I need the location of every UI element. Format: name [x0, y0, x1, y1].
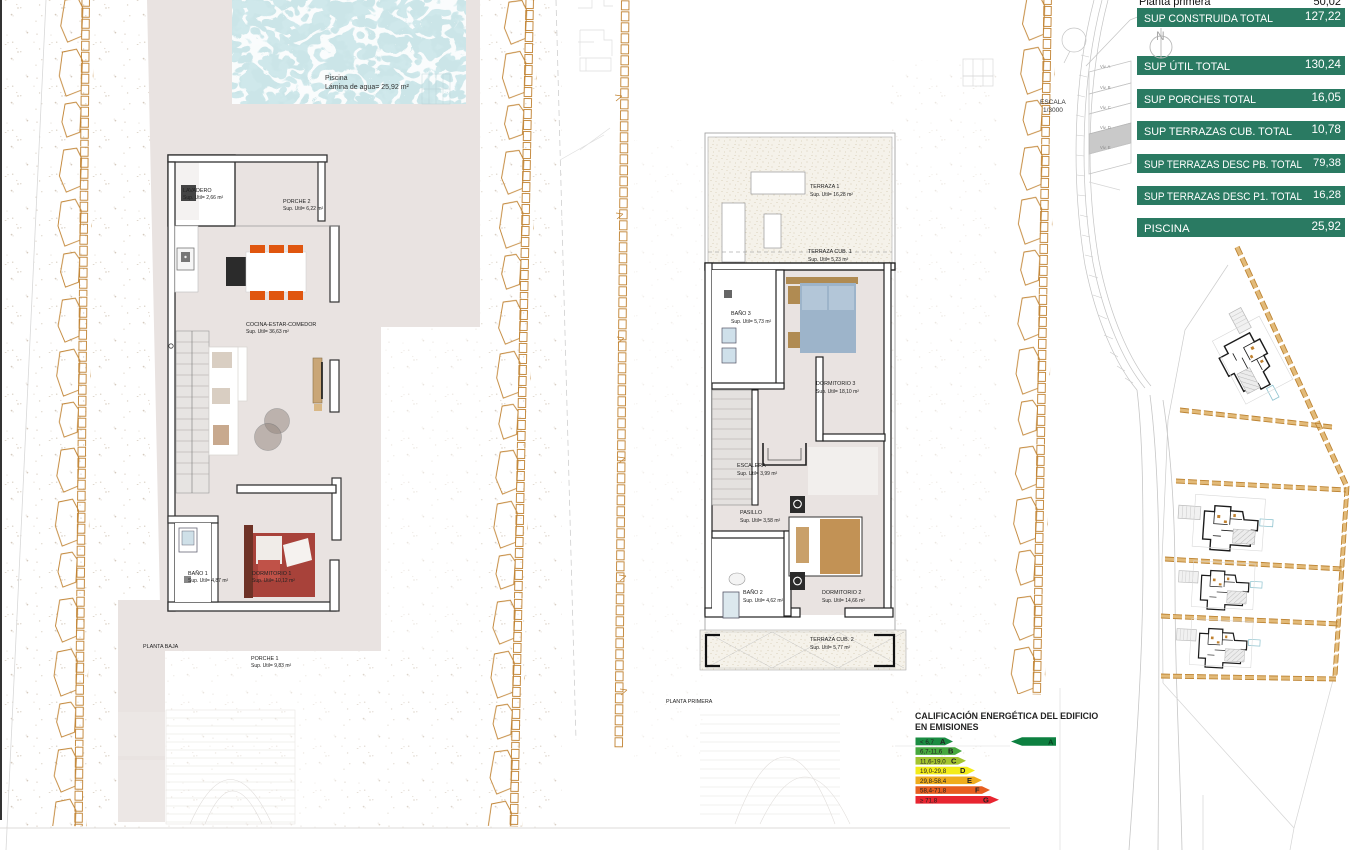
svg-text:C: C: [951, 757, 957, 766]
svg-text:Sup. Util= 4,62 m²: Sup. Util= 4,62 m²: [743, 598, 783, 604]
svg-text:Viv. B: Viv. B: [1100, 85, 1111, 90]
svg-text:19,0-29,8: 19,0-29,8: [920, 768, 947, 775]
svg-text:COCINA-ESTAR-COMEDOR: COCINA-ESTAR-COMEDOR: [246, 322, 316, 328]
svg-text:DORMITORIO 1: DORMITORIO 1: [252, 571, 291, 577]
svg-text:Piscina: Piscina: [325, 75, 348, 82]
svg-text:SUP CONSTRUIDA TOTAL: SUP CONSTRUIDA TOTAL: [1144, 13, 1273, 25]
svg-text:127,22: 127,22: [1305, 9, 1341, 23]
svg-text:16,05: 16,05: [1311, 90, 1341, 104]
svg-text:≥ 71,8: ≥ 71,8: [920, 797, 938, 804]
svg-text:TERRAZA 1: TERRAZA 1: [810, 184, 839, 190]
svg-text:SUP ÚTIL TOTAL: SUP ÚTIL TOTAL: [1144, 60, 1230, 73]
svg-text:BAÑO 2: BAÑO 2: [743, 589, 763, 596]
svg-text:SUP TERRAZAS DESC PB. TOTAL: SUP TERRAZAS DESC PB. TOTAL: [1144, 159, 1302, 171]
svg-text:E: E: [967, 776, 972, 785]
svg-text:50,02: 50,02: [1313, 0, 1341, 8]
svg-text:Sup. Util= 6,22 m²: Sup. Util= 6,22 m²: [283, 206, 323, 212]
svg-text:N: N: [1156, 29, 1165, 43]
svg-text:CALIFICACIÓN ENERGÉTICA DEL ED: CALIFICACIÓN ENERGÉTICA DEL EDIFICIO: [915, 710, 1098, 721]
svg-text:SUP TERRAZAS DESC P1. TOTAL: SUP TERRAZAS DESC P1. TOTAL: [1144, 191, 1302, 203]
svg-text:16,28: 16,28: [1313, 189, 1341, 201]
svg-text:Sup. Util= 36,63 m²: Sup. Util= 36,63 m²: [246, 329, 289, 335]
svg-text:PLANTA PRIMERA: PLANTA PRIMERA: [666, 699, 713, 705]
svg-text:Sup. Util= 14,66 m²: Sup. Util= 14,66 m²: [822, 598, 865, 604]
svg-text:Sup. Util= 5,73 m²: Sup. Util= 5,73 m²: [731, 319, 771, 325]
svg-text:Lámina de agua= 25,92 m²: Lámina de agua= 25,92 m²: [325, 84, 410, 91]
svg-text:TERRAZA CUB. 2: TERRAZA CUB. 2: [810, 637, 854, 643]
svg-text:Sup. Util= 5,23 m²: Sup. Util= 5,23 m²: [808, 257, 848, 263]
svg-text:A: A: [940, 737, 946, 746]
svg-text:SUP PORCHES TOTAL: SUP PORCHES TOTAL: [1144, 94, 1256, 106]
svg-text:Sup. Util= 4,87 m²: Sup. Util= 4,87 m²: [188, 578, 228, 584]
svg-text:1/3000: 1/3000: [1043, 107, 1063, 114]
svg-text:Sup. Util= 3,99 m²: Sup. Util= 3,99 m²: [737, 471, 777, 477]
svg-text:Viv. A: Viv. A: [1100, 64, 1111, 69]
svg-text:EN EMISIONES: EN EMISIONES: [915, 722, 979, 732]
svg-text:25,92: 25,92: [1311, 219, 1341, 233]
svg-text:Sup. Util= 5,77 m²: Sup. Util= 5,77 m²: [810, 645, 850, 651]
svg-text:TERRAZA CUB. 1: TERRAZA CUB. 1: [808, 249, 852, 255]
svg-text:ESCALERA: ESCALERA: [737, 463, 766, 469]
svg-text:D: D: [960, 766, 966, 775]
svg-text:11,6-19,0: 11,6-19,0: [920, 758, 946, 765]
svg-text:PASILLO: PASILLO: [740, 510, 762, 516]
svg-text:Sup. Util= 18,10 m²: Sup. Util= 18,10 m²: [816, 389, 859, 395]
svg-text:PLANTA BAJA: PLANTA BAJA: [143, 644, 179, 650]
svg-text:LAVADERO: LAVADERO: [183, 188, 212, 194]
svg-text:SUP TERRAZAS CUB. TOTAL: SUP TERRAZAS CUB. TOTAL: [1144, 126, 1292, 138]
svg-text:Viv. D: Viv. D: [1100, 125, 1111, 130]
svg-text:Sup. Util= 10,12 m²: Sup. Util= 10,12 m²: [252, 578, 295, 584]
svg-text:PORCHE 2: PORCHE 2: [283, 199, 311, 205]
svg-text:G: G: [983, 796, 989, 805]
svg-text:PISCINA: PISCINA: [1144, 223, 1190, 235]
svg-text:ESCALA: ESCALA: [1040, 99, 1066, 106]
svg-text:6,7-11,6: 6,7-11,6: [920, 749, 943, 756]
svg-text:F: F: [975, 786, 980, 795]
svg-text:58,4-71,8: 58,4-71,8: [920, 788, 947, 795]
svg-text:DORMITORIO 2: DORMITORIO 2: [822, 590, 861, 596]
svg-text:Viv. C: Viv. C: [1100, 105, 1111, 110]
svg-text:79,38: 79,38: [1313, 157, 1341, 169]
svg-text:A: A: [1048, 738, 1054, 747]
svg-text:Sup. Util= 2,66 m²: Sup. Util= 2,66 m²: [183, 195, 223, 201]
svg-text:Planta primera: Planta primera: [1139, 0, 1211, 8]
svg-text:BAÑO 1: BAÑO 1: [188, 570, 208, 577]
svg-text:PORCHE 1: PORCHE 1: [251, 656, 279, 662]
svg-text:Sup. Util= 16,28 m²: Sup. Util= 16,28 m²: [810, 192, 853, 198]
svg-text:Sup. Util= 3,58 m²: Sup. Util= 3,58 m²: [740, 518, 780, 524]
svg-text:BAÑO 3: BAÑO 3: [731, 310, 751, 317]
svg-text:DORMITORIO 3: DORMITORIO 3: [816, 381, 855, 387]
svg-text:10,78: 10,78: [1311, 122, 1341, 136]
svg-text:Sup. Util= 9,83 m²: Sup. Util= 9,83 m²: [251, 663, 291, 669]
svg-text:130,24: 130,24: [1305, 57, 1342, 71]
svg-text:29,8-58,4: 29,8-58,4: [920, 778, 947, 785]
svg-text:< 6,7: < 6,7: [920, 739, 934, 746]
svg-text:B: B: [948, 747, 954, 756]
svg-text:Viv. E: Viv. E: [1100, 145, 1111, 150]
